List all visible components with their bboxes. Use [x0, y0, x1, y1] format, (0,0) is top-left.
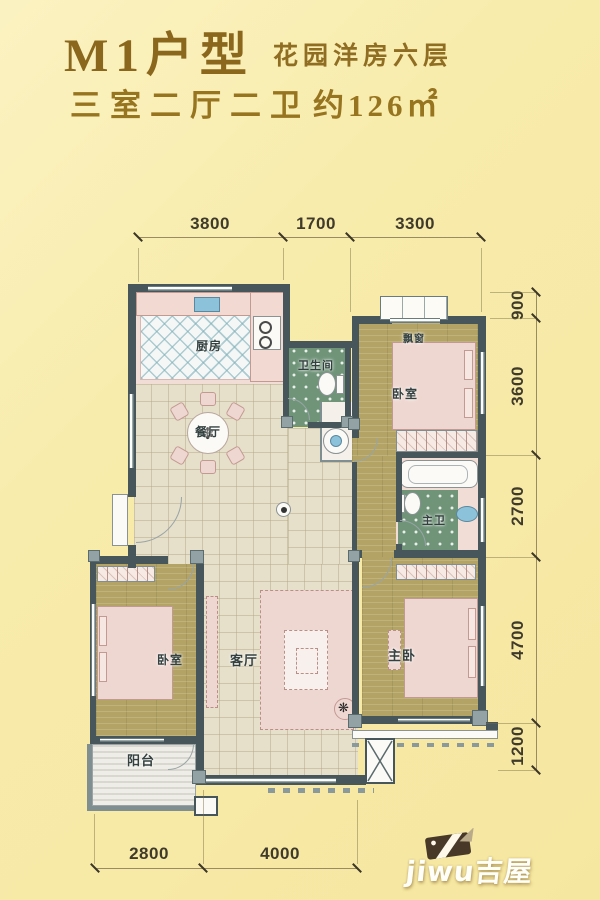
dim-line-right [536, 292, 537, 770]
drain-dot [281, 507, 287, 513]
wardrobe [396, 564, 476, 580]
pillow [99, 616, 107, 646]
room-label-bath: 卫生间 [298, 357, 334, 373]
dim-line-top [138, 237, 481, 238]
watermark-text: jiwu吉屋 [404, 850, 535, 890]
dim-top-3: 3300 [395, 214, 435, 234]
room-label-living: 客厅 [230, 650, 258, 669]
toilet-icon [318, 372, 336, 396]
basin-icon [456, 506, 478, 522]
page-title: M1户型 [64, 16, 254, 85]
window [390, 318, 440, 323]
wall [283, 284, 290, 348]
dim-ext [283, 248, 284, 280]
dim-right-2: 3600 [508, 366, 528, 406]
window [129, 394, 134, 468]
elevator-shaft [365, 738, 395, 784]
floorplan-page: M1户型 花园洋房六层 三室二厅二卫 约126㎡ ✽ ❋ [0, 0, 600, 900]
bay-window [380, 296, 448, 320]
window [148, 286, 232, 291]
toilet-tank [336, 375, 344, 394]
dim-ext [490, 292, 536, 293]
dim-ext [486, 455, 536, 456]
toilet-icon [404, 492, 421, 515]
dim-right-1: 900 [508, 290, 528, 320]
dim-ext [486, 723, 536, 724]
pillow [468, 646, 476, 678]
dim-ext [94, 814, 95, 864]
wall [394, 550, 480, 558]
window [398, 718, 470, 722]
room-label-bedroom-top: 卧室 [392, 385, 418, 402]
wall [396, 452, 480, 458]
window [480, 498, 485, 542]
wardrobe [97, 566, 155, 582]
dim-right-4: 4700 [508, 620, 528, 660]
room-label-balcony: 阳台 [127, 750, 155, 769]
elevator-x-icon [367, 740, 393, 782]
balcony-wall [87, 806, 201, 811]
dim-right-5: 1200 [508, 726, 528, 766]
burner-icon [259, 321, 272, 334]
wall [352, 558, 359, 724]
dim-ext [138, 248, 139, 282]
column-post [190, 550, 204, 564]
unit-spec: 三室二厅二卫 [70, 80, 310, 125]
balcony-wall [87, 744, 92, 811]
page-subtitle: 花园洋房六层 [273, 36, 453, 72]
wall [196, 556, 204, 784]
dim-right-3: 2700 [508, 486, 528, 526]
column-post [348, 714, 362, 728]
dim-ext [486, 557, 536, 558]
room-label-dining: 餐厅 [195, 423, 221, 440]
coffee-table-inner [296, 648, 318, 674]
dining-chair [200, 460, 216, 474]
column-post [88, 550, 100, 562]
room-label-master-bedroom: 主卧 [388, 645, 416, 664]
balcony-corner-step [194, 796, 218, 816]
room-label-kitchen: 厨房 [196, 337, 222, 354]
dim-bottom-2: 4000 [260, 844, 300, 864]
window [100, 738, 164, 742]
column-post [348, 418, 360, 430]
dim-top-1: 3800 [190, 214, 230, 234]
column-post [348, 550, 360, 562]
dim-ext [481, 248, 482, 312]
kitchen-sink [194, 297, 220, 312]
room-label-bay-window: 飘窗 [403, 330, 425, 345]
pillow [99, 652, 107, 682]
dim-ext [490, 318, 536, 319]
wall [345, 348, 351, 424]
dim-ext [498, 770, 536, 771]
window [91, 604, 96, 696]
room-label-bedroom-left: 卧室 [157, 651, 183, 668]
burner-icon [259, 336, 272, 349]
dim-ext [350, 248, 351, 312]
wall [90, 556, 168, 564]
pillow [464, 388, 473, 418]
bathtub-inner [408, 465, 468, 484]
dining-chair [200, 392, 216, 406]
dim-ext [357, 800, 358, 864]
wall [396, 458, 402, 522]
window [480, 352, 485, 414]
unit-area: 约126㎡ [313, 80, 442, 125]
ledge-marks [268, 788, 374, 793]
window [206, 778, 336, 783]
wall [352, 462, 357, 550]
wardrobe [396, 430, 478, 452]
dim-ext [203, 790, 204, 864]
wall [283, 341, 357, 348]
pillow [464, 350, 473, 380]
window [480, 606, 485, 686]
column-post [192, 770, 206, 784]
room-label-master-bath: 主卫 [422, 512, 446, 528]
entry-landing [112, 494, 128, 546]
washer-drum [330, 435, 342, 447]
dim-top-2: 1700 [296, 214, 336, 234]
dim-line-bottom [95, 868, 357, 869]
pillow [468, 608, 476, 640]
tv-cabinet [206, 596, 218, 708]
dim-bottom-1: 2800 [129, 844, 169, 864]
